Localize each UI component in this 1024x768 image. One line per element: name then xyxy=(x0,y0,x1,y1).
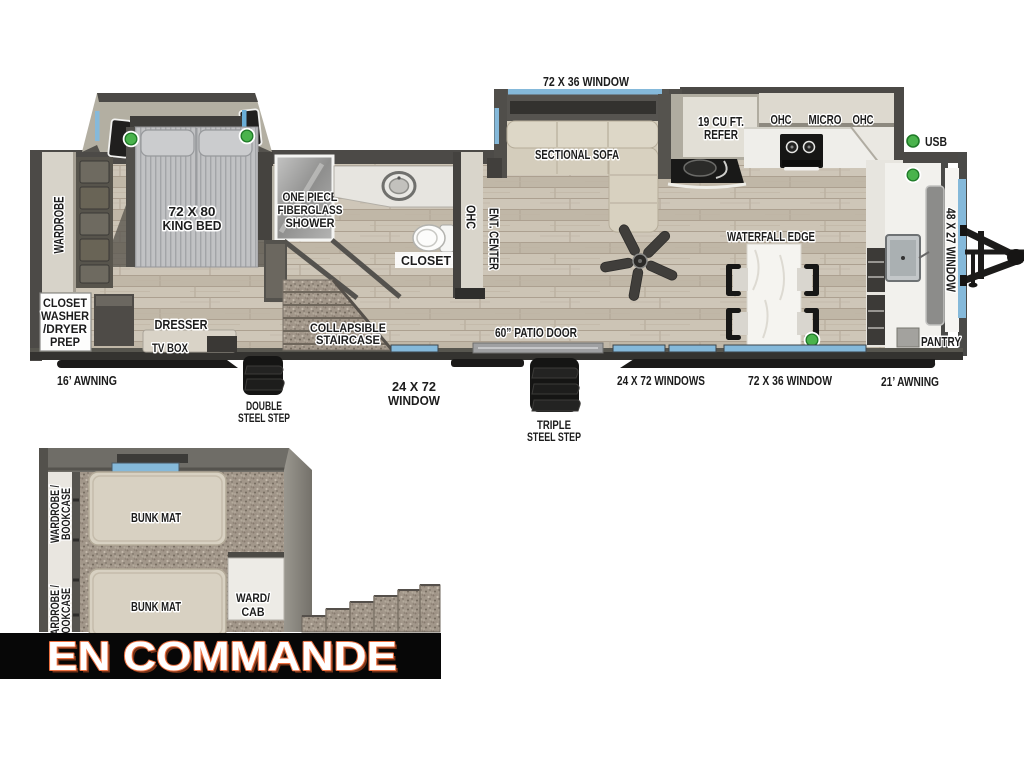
svg-text:WATERFALL EDGE: WATERFALL EDGE xyxy=(727,229,815,244)
svg-text:STEEL STEP: STEEL STEP xyxy=(238,411,290,425)
svg-text:72 X 80: 72 X 80 xyxy=(169,204,216,219)
svg-text:CLOSET: CLOSET xyxy=(43,296,88,310)
svg-text:EN COMMANDE: EN COMMANDE xyxy=(47,633,397,679)
svg-text:21’ AWNING: 21’ AWNING xyxy=(881,374,939,389)
svg-text:CAB: CAB xyxy=(242,605,265,619)
svg-text:19 CU FT.: 19 CU FT. xyxy=(698,115,744,129)
svg-text:60” PATIO DOOR: 60” PATIO DOOR xyxy=(495,325,577,340)
svg-text:/DRYER: /DRYER xyxy=(43,322,87,336)
svg-text:USB: USB xyxy=(925,134,947,149)
svg-text:REFER: REFER xyxy=(704,128,738,142)
svg-text:OHC: OHC xyxy=(771,112,792,127)
svg-text:24 X 72 WINDOWS: 24 X 72 WINDOWS xyxy=(617,373,705,388)
svg-text:STAIRCASE: STAIRCASE xyxy=(316,333,380,347)
svg-text:PANTRY: PANTRY xyxy=(921,334,961,349)
svg-text:WASHER: WASHER xyxy=(41,309,89,323)
svg-text:SECTIONAL SOFA: SECTIONAL SOFA xyxy=(535,147,619,162)
svg-text:PREP: PREP xyxy=(50,335,80,349)
svg-text:BUNK MAT: BUNK MAT xyxy=(131,511,181,525)
svg-text:WARD/: WARD/ xyxy=(236,591,271,605)
svg-text:ONE PIECE: ONE PIECE xyxy=(283,190,338,204)
svg-text:TV BOX: TV BOX xyxy=(152,341,188,355)
svg-text:DRESSER: DRESSER xyxy=(155,317,209,332)
svg-text:CLOSET: CLOSET xyxy=(401,253,451,268)
svg-text:KING BED: KING BED xyxy=(163,218,222,233)
svg-text:SHOWER: SHOWER xyxy=(286,216,335,230)
svg-text:MICRO: MICRO xyxy=(809,112,842,127)
svg-text:BUNK MAT: BUNK MAT xyxy=(131,600,181,614)
svg-text:16’ AWNING: 16’ AWNING xyxy=(57,373,117,388)
svg-text:STEEL STEP: STEEL STEP xyxy=(527,430,581,444)
svg-text:WARDROBE: WARDROBE xyxy=(52,197,67,254)
svg-text:BOOKCASE: BOOKCASE xyxy=(61,488,73,540)
svg-text:72 X 36 WINDOW: 72 X 36 WINDOW xyxy=(748,373,833,388)
svg-text:OHC: OHC xyxy=(853,112,874,127)
svg-text:WINDOW: WINDOW xyxy=(388,393,441,408)
svg-text:24 X 72: 24 X 72 xyxy=(392,379,436,394)
svg-text:FIBERGLASS: FIBERGLASS xyxy=(278,203,343,217)
svg-text:ENT. CENTER: ENT. CENTER xyxy=(487,208,502,270)
svg-text:48 X 27 WINDOW: 48 X 27 WINDOW xyxy=(944,208,959,293)
svg-text:72 X 36 WINDOW: 72 X 36 WINDOW xyxy=(543,74,630,89)
svg-text:OHC: OHC xyxy=(464,205,479,230)
